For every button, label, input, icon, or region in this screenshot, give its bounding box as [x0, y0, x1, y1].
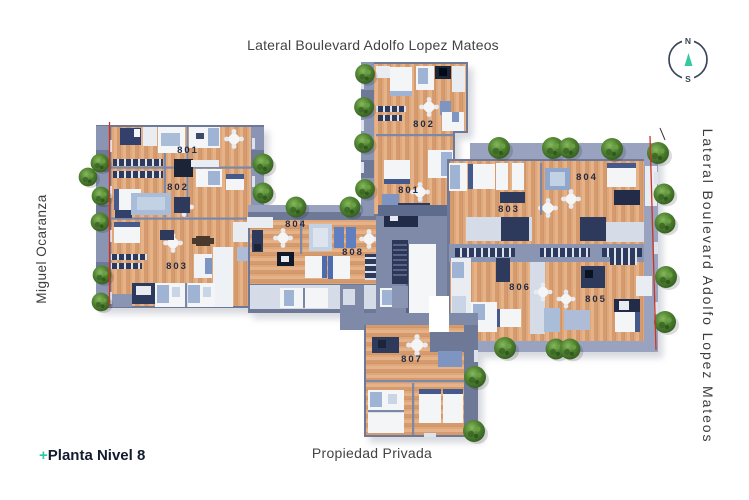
svg-text:804: 804: [576, 172, 598, 183]
svg-text:805: 805: [585, 294, 607, 305]
svg-text:801: 801: [398, 185, 420, 196]
svg-text:N: N: [685, 36, 691, 46]
svg-text:+Planta Nivel 8: +Planta Nivel 8: [39, 447, 145, 464]
svg-text:808: 808: [342, 247, 364, 258]
svg-text:S: S: [685, 74, 691, 84]
svg-text:802: 802: [413, 119, 435, 130]
svg-text:Lateral Boulevard Adolfo Lopez: Lateral Boulevard Adolfo Lopez Mateos: [700, 129, 716, 444]
svg-text:Lateral Boulevard Adolfo Lopez: Lateral Boulevard Adolfo Lopez Mateos: [247, 37, 499, 53]
svg-text:802: 802: [167, 182, 189, 193]
svg-text:Propiedad Privada: Propiedad Privada: [312, 445, 432, 461]
svg-text:806: 806: [509, 282, 531, 293]
svg-text:803: 803: [166, 261, 188, 272]
svg-text:803: 803: [498, 204, 520, 215]
svg-text:807: 807: [401, 354, 423, 365]
svg-text:Miguel Ocaranza: Miguel Ocaranza: [34, 194, 49, 304]
svg-text:801: 801: [177, 145, 199, 156]
svg-text:804: 804: [285, 219, 307, 230]
